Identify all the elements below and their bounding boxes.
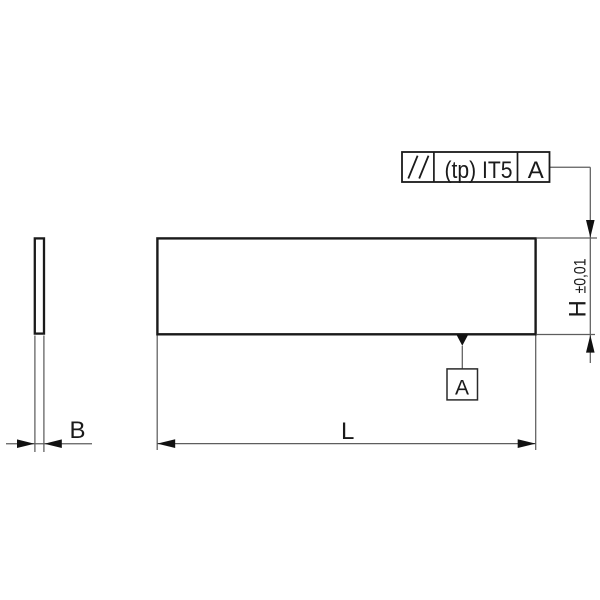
svg-text:(tp) IT5: (tp) IT5 (445, 157, 513, 184)
svg-text:A: A (528, 157, 544, 184)
svg-text:B: B (69, 417, 85, 444)
svg-text:A: A (455, 377, 469, 400)
svg-text:L: L (341, 418, 354, 445)
